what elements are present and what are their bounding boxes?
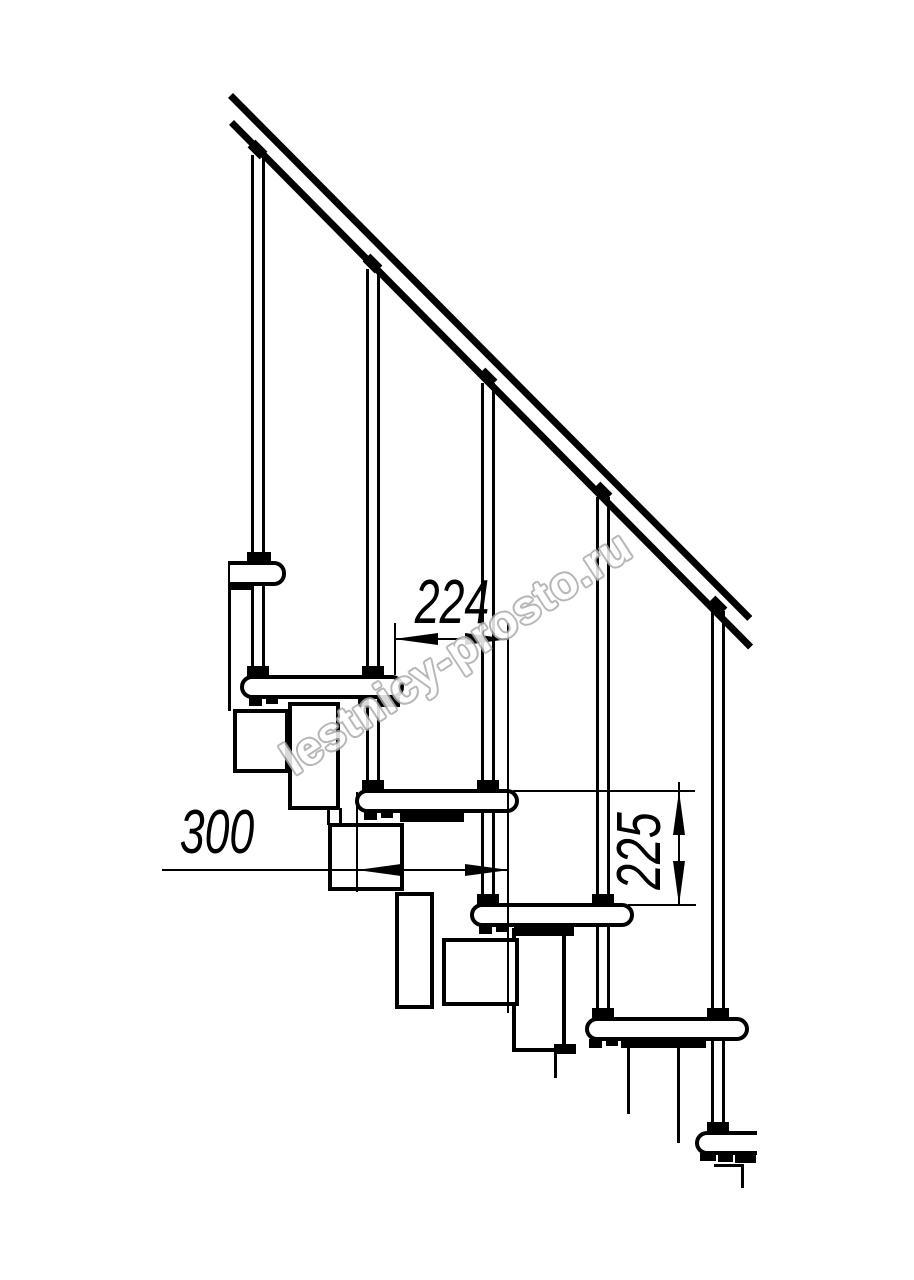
dim-depth-line (162, 869, 509, 871)
module-box-4-left-edge (554, 1052, 557, 1078)
dim-rise-ext-top (513, 790, 695, 792)
dim-rise-label: 225 (609, 802, 671, 900)
tread5-support-hline (714, 1164, 744, 1167)
baluster-4-lower (596, 925, 610, 1017)
staircase-technical-drawing: 224 300 225 lestnicy-prosto.ru (0, 0, 914, 1280)
tread5-fitting-b (718, 1155, 733, 1162)
baluster-5-lower (711, 1039, 725, 1131)
baluster-5-upper (711, 611, 725, 1017)
tread-5 (695, 1131, 757, 1155)
module-box-4-joint (554, 1044, 576, 1054)
module-box-4-right-edge (627, 1048, 630, 1114)
baluster-1-upper (251, 155, 265, 561)
tread-2 (355, 789, 519, 813)
module-column-4-edge (677, 1045, 680, 1143)
baluster-1-lower (251, 585, 265, 675)
tread-3 (470, 903, 634, 927)
wall-edge-line (228, 583, 231, 711)
dim-rise-ext-bottom (628, 904, 696, 906)
dim-depth-label: 300 (170, 802, 264, 864)
module-column-3 (512, 928, 566, 1052)
baluster-3-lower (481, 811, 495, 903)
dim-depth-ext-left (356, 792, 358, 892)
dim-rise-arrow-up (673, 791, 685, 835)
dim-run-ext-right (507, 623, 509, 1013)
tread-4 (585, 1017, 749, 1041)
module-box-2 (328, 823, 404, 891)
dim-depth-arrow-right (465, 864, 509, 876)
module-column-2 (395, 892, 434, 1009)
tread-0 (228, 561, 286, 586)
baluster-2-upper (366, 269, 380, 675)
dim-depth-arrow-left (357, 864, 401, 876)
tread5-support-vline (741, 1164, 744, 1188)
dim-rise-arrow-down (673, 861, 685, 905)
